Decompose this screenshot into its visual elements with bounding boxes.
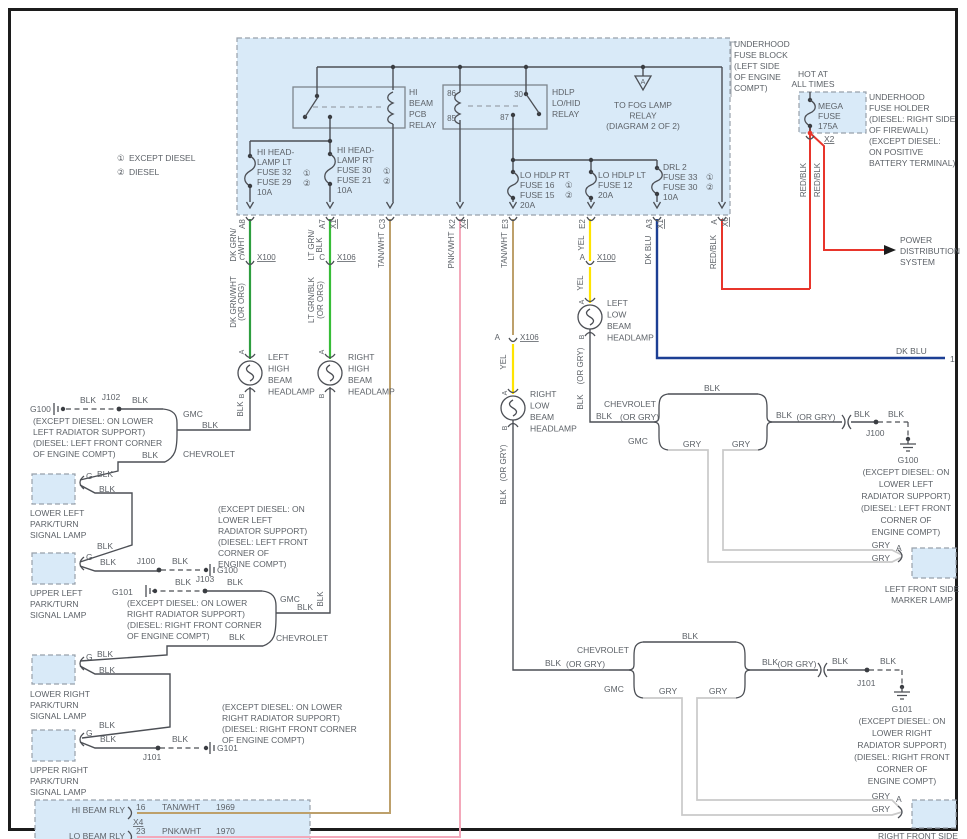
wire-label: GRY bbox=[872, 540, 891, 550]
wire-label: BLK bbox=[172, 556, 188, 566]
connector-x100: X100 bbox=[597, 253, 616, 262]
left-low-beam-label: LEFTLOWBEAMHEADLAMP bbox=[607, 298, 654, 343]
wire-label: BLK bbox=[704, 383, 720, 393]
left-ground-network: G100 BLK J102 BLK GMC BLK CHEVROLET BLK … bbox=[30, 392, 308, 620]
wire-label: BLK bbox=[227, 577, 243, 587]
all-times: ALL TIMES bbox=[792, 79, 835, 89]
dk-blu-label: DK BLU bbox=[896, 346, 927, 356]
g101-label: G101 bbox=[112, 587, 133, 597]
g100-ground bbox=[900, 437, 916, 451]
right-marker-lamp-label: RIGHT FRONT SIDE bbox=[878, 831, 958, 839]
j103-label: J103 bbox=[196, 574, 215, 584]
hot-at: HOT AT bbox=[798, 69, 828, 79]
wire-label: BLK bbox=[682, 631, 698, 641]
wire-label: TAN/WHT bbox=[377, 232, 386, 268]
j101-label: J101 bbox=[143, 752, 162, 762]
wire-label: BLK bbox=[832, 656, 848, 666]
legend: ① EXCEPT DIESEL ② DIESEL bbox=[117, 153, 196, 177]
circle-1: ① bbox=[706, 172, 714, 182]
terminal-a3: A3 bbox=[645, 219, 654, 229]
upper-right-park-turn-lamp-box bbox=[32, 730, 75, 761]
circle-1: ① bbox=[303, 168, 311, 178]
gmc-label: GMC bbox=[604, 684, 624, 694]
chevrolet-label: CHEVROLET bbox=[276, 633, 328, 643]
wire-label: GRY bbox=[872, 553, 891, 563]
wire-label: BLK bbox=[100, 734, 116, 744]
right-high-beam-headlamp bbox=[318, 354, 342, 392]
connector-x100: X100 bbox=[257, 253, 276, 262]
wire-label: BLK bbox=[172, 734, 188, 744]
headlamp-labels: A B LEFTHIGHBEAMHEADLAMP A B RIGHTHIGHBE… bbox=[236, 298, 654, 607]
wire-label: GRY bbox=[683, 439, 702, 449]
right-front-side-marker-lamp-box bbox=[912, 800, 956, 828]
wire-label: BLK bbox=[99, 720, 115, 730]
circuit-1969: 1969 bbox=[216, 802, 235, 812]
wire-label: TAN/WHT bbox=[162, 802, 200, 812]
wire-label: LT GRN/BLK bbox=[307, 276, 316, 323]
wire-label: BLK bbox=[854, 409, 870, 419]
wires-dashed-ground bbox=[66, 409, 908, 748]
lower-right-park-turn-lamp-box bbox=[32, 655, 75, 684]
terminal-87: 87 bbox=[500, 113, 509, 122]
gmc-label: GMC bbox=[183, 409, 203, 419]
legend-circle-1: ① bbox=[117, 153, 125, 163]
circle-2: ② bbox=[706, 182, 714, 192]
wire-label: BLK bbox=[202, 420, 218, 430]
connector-x106: X106 bbox=[337, 253, 356, 262]
pin-c: C bbox=[239, 253, 245, 262]
g100-label: G100 bbox=[898, 455, 919, 465]
circuit-1970: 1970 bbox=[216, 826, 235, 836]
wire-label: (OR GRY) bbox=[566, 659, 605, 669]
pin-16: 16 bbox=[136, 802, 146, 812]
power-distribution-label: POWERDISTRIBUTIONSYSTEM bbox=[900, 235, 960, 267]
wire-red-blk bbox=[722, 126, 884, 289]
wiring-diagram-canvas: UNDERHOODFUSE BLOCK(LEFT SIDEOF ENGINECO… bbox=[0, 0, 967, 839]
connector-x2: X2 bbox=[824, 134, 835, 144]
wire-label: BLK bbox=[880, 656, 896, 666]
connector-x1: X1 bbox=[656, 219, 665, 229]
pin-g: G bbox=[86, 652, 93, 662]
circle-2: ② bbox=[565, 190, 573, 200]
pin-a: A bbox=[579, 299, 586, 304]
page-ref-1: 1 bbox=[950, 354, 955, 364]
wire-label: WHT bbox=[237, 236, 246, 254]
fuse-holder-title: UNDERHOODFUSE HOLDER(DIESEL: RIGHT SIDEO… bbox=[869, 92, 956, 168]
circle-2: ② bbox=[383, 176, 391, 186]
wire-label: DK BLU bbox=[644, 235, 653, 264]
wire-label: BLK bbox=[576, 394, 585, 410]
pin-b: B bbox=[239, 393, 246, 398]
left-high-beam-label: LEFTHIGHBEAMHEADLAMP bbox=[268, 352, 315, 397]
pin-c: C bbox=[319, 253, 325, 262]
pin-a: A bbox=[502, 390, 509, 395]
j102-label: J102 bbox=[102, 392, 121, 402]
wire-label: BLK bbox=[596, 411, 612, 421]
fog-triangle-letter: A bbox=[641, 79, 646, 86]
wire-label: (OR GRY) bbox=[576, 347, 585, 384]
wire-label: (OR GRY) bbox=[796, 412, 835, 422]
connector-x4: X4 bbox=[459, 219, 468, 229]
left-front-side-marker-lamp-box bbox=[912, 548, 956, 578]
wire-label: BLK bbox=[762, 657, 778, 667]
connector-x1: X1 bbox=[329, 219, 338, 229]
hi-beam-rly-label: HI BEAM RLY bbox=[72, 805, 126, 815]
wire-label: YEL bbox=[576, 275, 585, 291]
g100-label: G100 bbox=[30, 404, 51, 414]
chevrolet-label: CHEVROLET bbox=[604, 399, 656, 409]
wire-label: YEL bbox=[499, 354, 508, 370]
pin-a: A bbox=[896, 794, 902, 804]
terminal-a7: A7 bbox=[318, 219, 327, 229]
j101-label: J101 bbox=[857, 678, 876, 688]
block-terminal-labels: A8 DK GRN/ WHT A7 X1 LT GRN/ BLK C3 TAN/… bbox=[229, 217, 730, 270]
wire-label: GRY bbox=[872, 791, 891, 801]
wire-label: BLK bbox=[888, 409, 904, 419]
wire-label: BLK bbox=[97, 649, 113, 659]
lower-right-lamp-label: LOWER RIGHTPARK/TURNSIGNAL LAMP bbox=[30, 689, 90, 721]
upper-left-lamp-label: UPPER LEFTPARK/TURNSIGNAL LAMP bbox=[30, 588, 87, 620]
wire-label: (OR GRY) bbox=[499, 444, 508, 481]
wire-label: BLK bbox=[175, 577, 191, 587]
inline-connectors bbox=[246, 261, 851, 677]
wire-label-red-blk-2: RED/BLK bbox=[813, 162, 822, 197]
pin-a: A bbox=[580, 253, 586, 262]
pin-23: 23 bbox=[136, 826, 146, 836]
power-distribution-arrow bbox=[884, 245, 896, 255]
pin-g: G bbox=[86, 728, 93, 738]
lower-left-park-turn-lamp-box bbox=[32, 474, 75, 504]
connector-x106: X106 bbox=[520, 333, 539, 342]
wire-label: (OR GRY) bbox=[620, 412, 659, 422]
wire-label: BLK bbox=[236, 401, 245, 417]
terminal-c3: C3 bbox=[378, 218, 387, 229]
wire-label-red-blk-1: RED/BLK bbox=[799, 162, 808, 197]
wire-label: BLK bbox=[142, 450, 158, 460]
g100-location-note-3: (EXCEPT DIESEL: ONLOWER LEFTRADIATOR SUP… bbox=[861, 467, 951, 537]
wire-label: GRY bbox=[872, 804, 891, 814]
wire-label: PNK/WHT bbox=[162, 826, 201, 836]
wire-label: BLK bbox=[100, 557, 116, 567]
connector-x6: X6 bbox=[721, 217, 730, 227]
g101-ref-j103 bbox=[146, 585, 157, 597]
terminal-a: A bbox=[710, 219, 719, 225]
right-ground-network: G101 BLK J103 BLK GMC BLK CHEVROLET BLK … bbox=[30, 574, 357, 797]
wire-label: BLK bbox=[316, 591, 325, 607]
pin-b: B bbox=[579, 334, 586, 339]
wire-label: TAN/WHT bbox=[500, 232, 509, 268]
svg-text:②: ② bbox=[117, 167, 125, 177]
pin-a: A bbox=[896, 543, 902, 553]
wire-label: (OR ORG) bbox=[237, 283, 246, 321]
right-low-beam-ground-group: CHEVROLET BLK (OR GRY) GMC BLK GRY GRY B… bbox=[545, 631, 958, 839]
j100-label: J100 bbox=[866, 428, 885, 438]
g100-ref-left bbox=[54, 403, 65, 415]
wire-label: BLK bbox=[297, 602, 313, 612]
g101-ref-j101 bbox=[204, 742, 214, 754]
wire-label: BLK bbox=[99, 484, 115, 494]
lower-left-lamp-label: LOWER LEFTPARK/TURNSIGNAL LAMP bbox=[30, 508, 87, 540]
g101-ground bbox=[894, 685, 910, 699]
right-low-beam-label: RIGHTLOWBEAMHEADLAMP bbox=[530, 389, 577, 434]
wire-label: PNK/WHT bbox=[447, 231, 456, 268]
circle-1: ① bbox=[565, 180, 573, 190]
pin-a: A bbox=[319, 349, 326, 354]
g101-location-note-2: (EXCEPT DIESEL: ON LOWERRIGHT RADIATOR S… bbox=[222, 702, 357, 745]
wire-label: YEL bbox=[577, 235, 586, 251]
pin-b: B bbox=[502, 425, 509, 430]
gmc-label: GMC bbox=[628, 436, 648, 446]
left-high-beam-headlamp bbox=[238, 354, 262, 392]
left-low-beam-ground-group: CHEVROLET BLK (OR GRY) GMC BLK GRY GRY B… bbox=[596, 383, 959, 605]
wire-label: BLK bbox=[132, 395, 148, 405]
pin-g: G bbox=[86, 552, 93, 562]
wire-label: BLK bbox=[97, 469, 113, 479]
terminal-e3: E3 bbox=[501, 219, 510, 229]
chevrolet-label: CHEVROLET bbox=[577, 645, 629, 655]
upper-left-park-turn-lamp-box bbox=[32, 553, 75, 584]
legend-diesel: DIESEL bbox=[129, 167, 160, 177]
terminal-86: 86 bbox=[447, 89, 456, 98]
wire-label: BLK bbox=[545, 658, 561, 668]
wire-label: BLK bbox=[99, 665, 115, 675]
pin-b: B bbox=[319, 393, 326, 398]
terminal-85: 85 bbox=[447, 114, 456, 123]
wire-label: BLK bbox=[776, 410, 792, 420]
wire-label: BLK bbox=[499, 489, 508, 505]
right-high-beam-label: RIGHTHIGHBEAMHEADLAMP bbox=[348, 352, 395, 397]
terminal-30: 30 bbox=[514, 90, 523, 99]
pin-a: A bbox=[495, 333, 501, 342]
terminal-e2: E2 bbox=[578, 219, 587, 229]
wire-label: GRY bbox=[709, 686, 728, 696]
wire-label: BLK bbox=[315, 237, 324, 253]
lo-beam-rly-label: LO BEAM RLY bbox=[69, 831, 125, 839]
g100-location-note-2: (EXCEPT DIESEL: ONLOWER LEFTRADIATOR SUP… bbox=[218, 504, 308, 569]
wire-label: RED/BLK bbox=[709, 234, 718, 269]
chevrolet-label: CHEVROLET bbox=[183, 449, 235, 459]
g101-label: G101 bbox=[892, 704, 913, 714]
legend-except-diesel: EXCEPT DIESEL bbox=[129, 153, 196, 163]
wire-label: BLK bbox=[97, 541, 113, 551]
fuse-block-title: UNDERHOODFUSE BLOCK(LEFT SIDEOF ENGINECO… bbox=[734, 39, 790, 93]
wire-label: BLK bbox=[80, 395, 96, 405]
lamp-pin-brackets bbox=[80, 476, 902, 839]
upper-right-lamp-label: UPPER RIGHTPARK/TURNSIGNAL LAMP bbox=[30, 765, 88, 797]
wire-label: GRY bbox=[732, 439, 751, 449]
terminal-k2: K2 bbox=[448, 219, 457, 229]
left-marker-lamp-label: LEFT FRONT SIDEMARKER LAMP bbox=[885, 584, 960, 605]
pin-a: A bbox=[239, 349, 246, 354]
wire-label: (OR GRY) bbox=[777, 659, 816, 669]
wire-label: (OR ORG) bbox=[316, 281, 325, 319]
wire-label: GRY bbox=[659, 686, 678, 696]
circle-2: ② bbox=[303, 178, 311, 188]
pin-g: G bbox=[86, 471, 93, 481]
wire-label: BLK bbox=[229, 632, 245, 642]
legend-circle-2: ② bbox=[117, 167, 125, 177]
g101-location-note-3: (EXCEPT DIESEL: ONLOWER RIGHTRADIATOR SU… bbox=[854, 716, 950, 786]
svg-text:①: ① bbox=[117, 153, 125, 163]
j100-label: J100 bbox=[137, 556, 156, 566]
circle-1: ① bbox=[383, 166, 391, 176]
terminal-a8: A8 bbox=[238, 219, 247, 229]
